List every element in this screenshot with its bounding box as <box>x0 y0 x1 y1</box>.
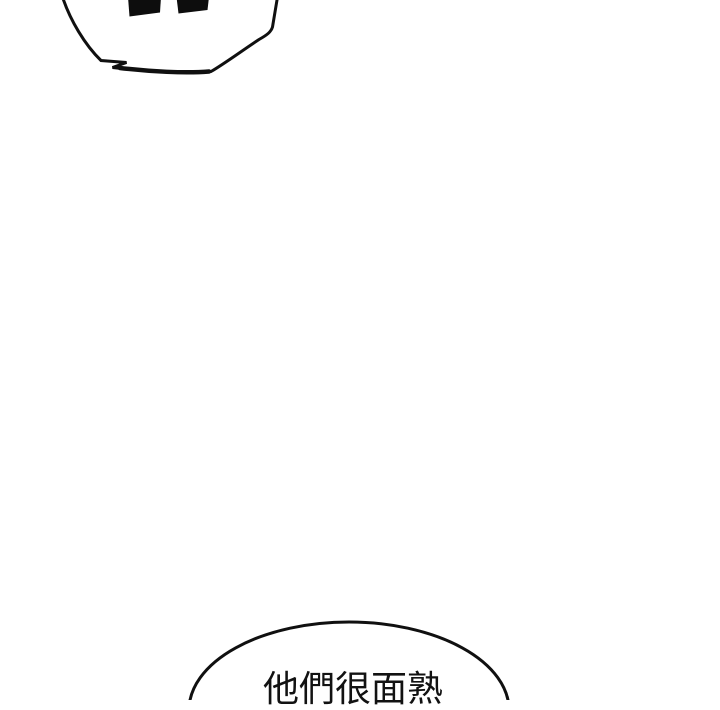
comic-panel: 他們很面熟 <box>0 0 720 700</box>
bottom-speech-bubble <box>0 0 720 700</box>
speech-bubble-text: 他們很面熟 <box>263 670 463 710</box>
